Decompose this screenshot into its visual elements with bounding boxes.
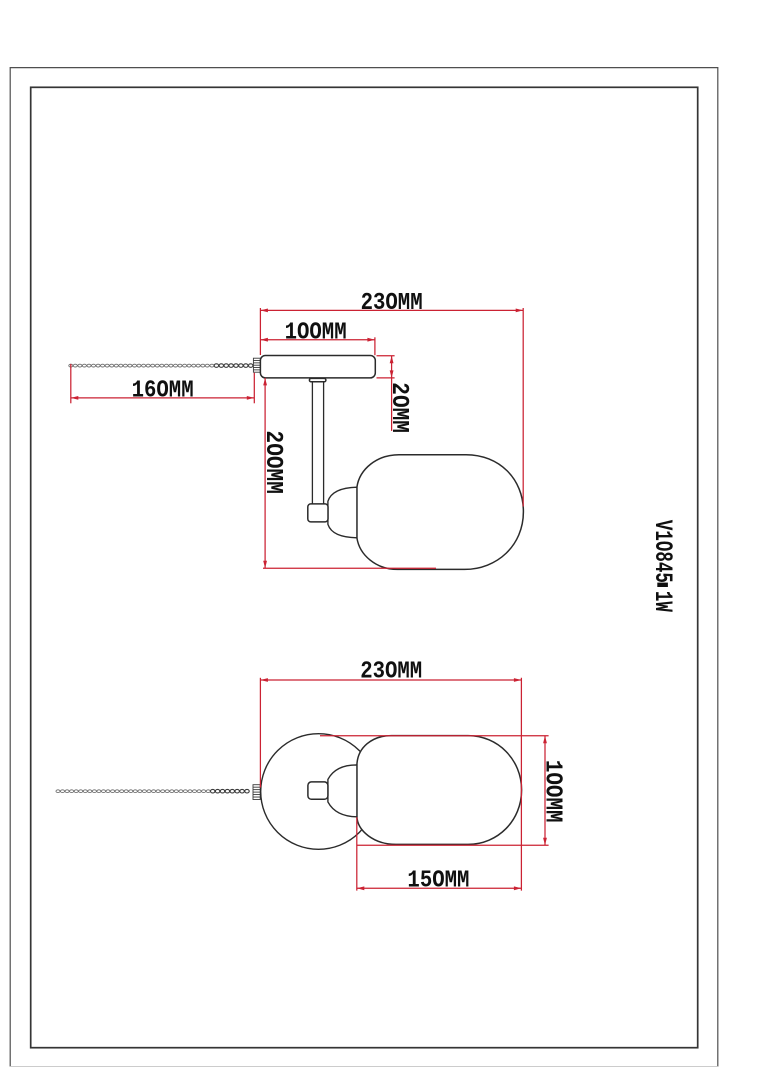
svg-text:1OOMM: 1OOMM: [539, 760, 567, 823]
svg-text:16OMM: 16OMM: [132, 376, 194, 404]
svg-text:1W: 1W: [648, 591, 676, 612]
svg-text:1OOMM: 1OOMM: [285, 318, 347, 346]
svg-text:2OOMM: 2OOMM: [259, 431, 287, 494]
svg-text:23OMM: 23OMM: [361, 289, 423, 317]
svg-text:2OMM: 2OMM: [385, 382, 413, 433]
svg-text:15OMM: 15OMM: [407, 866, 469, 894]
svg-text:V1O845: V1O845: [648, 520, 676, 583]
svg-text:23OMM: 23OMM: [360, 657, 422, 685]
